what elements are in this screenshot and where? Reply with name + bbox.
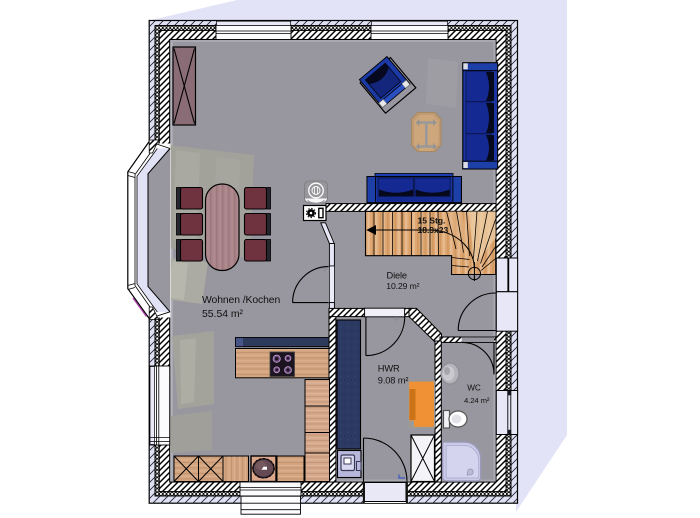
svg-text:HWR: HWR [378, 364, 400, 374]
svg-text:18.9x23: 18.9x23 [418, 225, 449, 235]
svg-text:10.29 m²: 10.29 m² [386, 281, 419, 291]
svg-text:Wohnen /Kochen: Wohnen /Kochen [202, 295, 280, 306]
svg-text:9.08 m²: 9.08 m² [378, 375, 409, 385]
svg-text:WC: WC [467, 383, 481, 392]
svg-text:55.54 m²: 55.54 m² [202, 309, 244, 320]
svg-text:Diele: Diele [387, 271, 407, 281]
svg-text:4.24 m²: 4.24 m² [464, 396, 490, 405]
